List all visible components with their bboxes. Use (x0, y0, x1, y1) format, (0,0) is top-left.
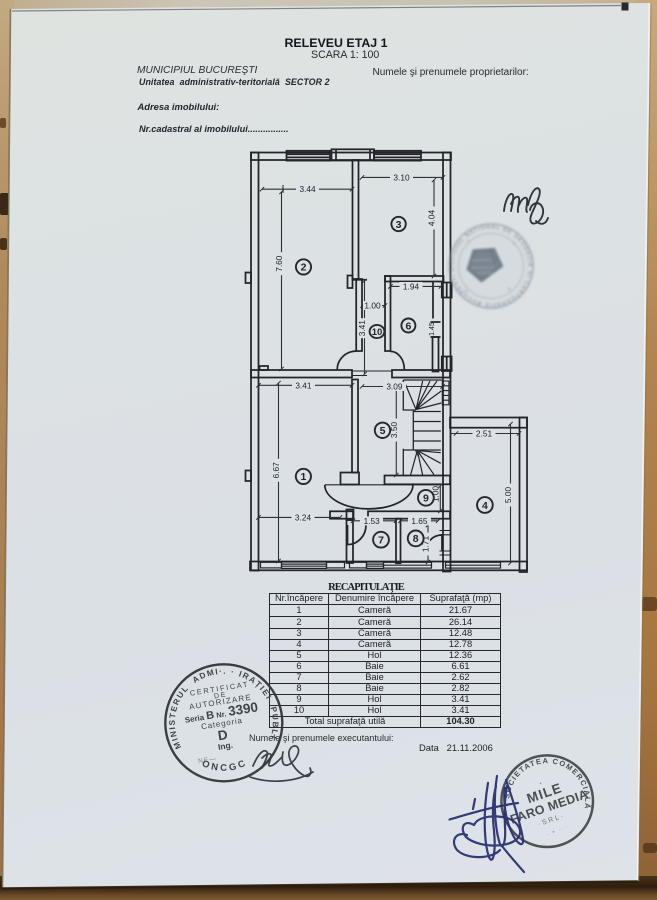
svg-text:1.94: 1.94 (403, 281, 420, 291)
svg-text:3.09: 3.09 (386, 382, 403, 392)
svg-text:· • ···: · • ··· (545, 825, 569, 838)
svg-text:3.10: 3.10 (393, 172, 410, 182)
svg-text:MINISTERUL ADMI·. · IRAȚIEI: MINISTERUL ADMI·. · IRAȚIEI PUBLICEI (0, 0, 280, 750)
svg-text:6: 6 (405, 320, 411, 332)
svg-text:4.04: 4.04 (427, 210, 437, 227)
svg-text:7.60: 7.60 (274, 255, 284, 272)
svg-text:•: • (539, 781, 544, 788)
svg-text:1: 1 (300, 471, 306, 483)
svg-text:6.67: 6.67 (271, 462, 281, 479)
svg-text:3: 3 (396, 219, 402, 231)
svg-text:5: 5 (380, 425, 386, 437)
svg-text:OFICIUL NATIONAL DE GEODEZIE S: OFICIUL NATIONAL DE GEODEZIE SI CARTOGRA… (0, 0, 533, 308)
svg-text:1.00: 1.00 (364, 301, 381, 311)
svg-text:3.41: 3.41 (357, 320, 367, 337)
svg-text:3.24: 3.24 (295, 512, 312, 522)
svg-text:1.45: 1.45 (429, 322, 436, 336)
svg-text:3.44: 3.44 (300, 184, 317, 194)
svg-text:1.53: 1.53 (364, 516, 381, 526)
svg-text:7: 7 (378, 535, 384, 547)
svg-text:8: 8 (413, 533, 419, 545)
svg-text:Ing.: Ing. (217, 740, 233, 752)
svg-text:4: 4 (482, 500, 488, 512)
svg-text:2.51: 2.51 (476, 429, 493, 439)
svg-text:9: 9 (423, 493, 429, 505)
svg-text:3.41: 3.41 (295, 380, 312, 390)
svg-text:1.65: 1.65 (411, 516, 428, 526)
svg-text:2: 2 (301, 262, 307, 274)
svg-text:10: 10 (372, 327, 383, 338)
svg-text:5.00: 5.00 (503, 487, 513, 504)
